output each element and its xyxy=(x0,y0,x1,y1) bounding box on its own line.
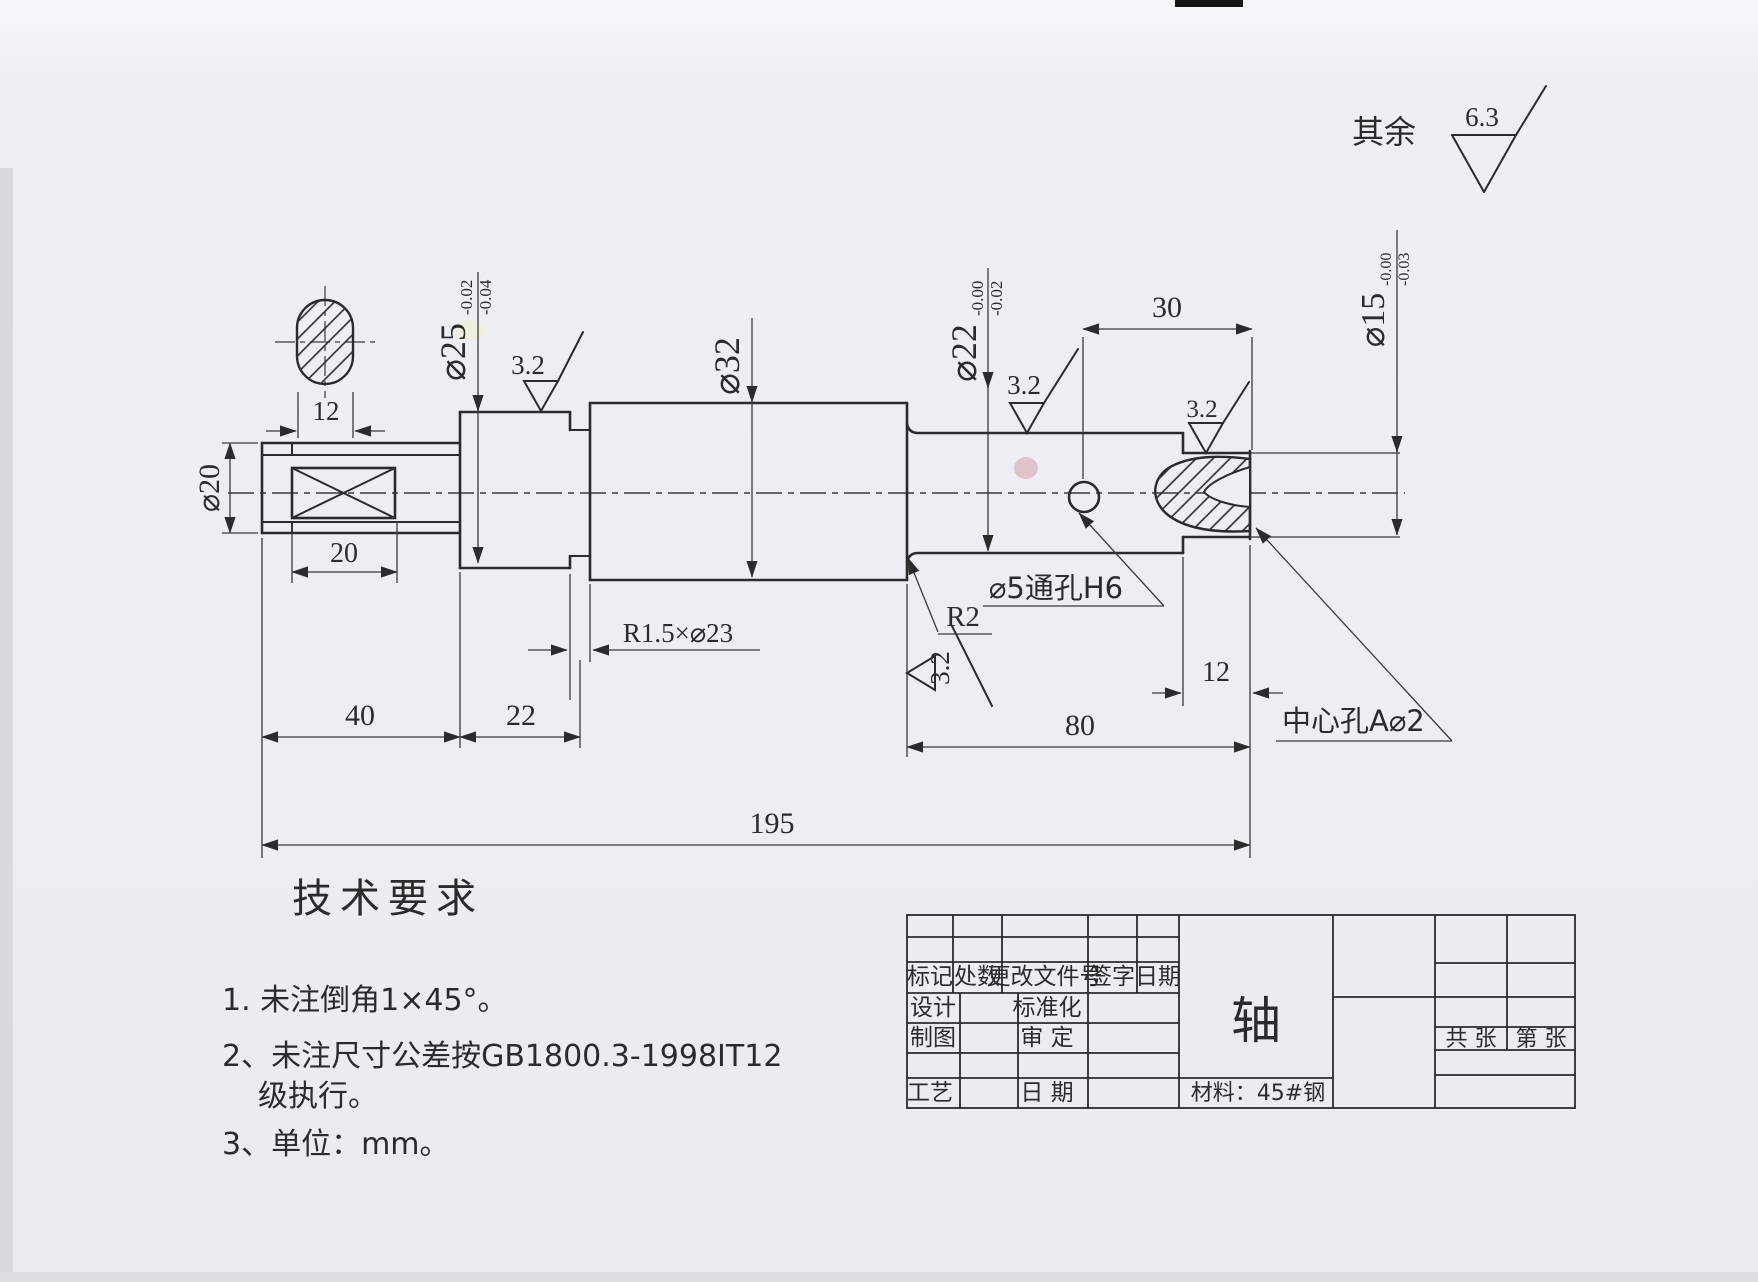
tb-design: 设计 xyxy=(910,995,956,1021)
svg-text:40: 40 xyxy=(345,699,375,732)
svg-text:⌀5通孔H6: ⌀5通孔H6 xyxy=(989,571,1123,605)
broken-out-keyway-section xyxy=(1155,457,1250,532)
rest-roughness-value: 6.3 xyxy=(1465,102,1499,132)
tb-approve: 审 定 xyxy=(1020,1025,1073,1051)
shaft-outline xyxy=(262,403,1250,580)
dim-d25: ⌀25 -0.02 -0.04 xyxy=(433,272,495,563)
dim-d32: ⌀32 xyxy=(707,318,752,577)
tech-req-item-2: 2、未注尺寸公差按GB1800.3-1998IT12 xyxy=(222,1039,782,1074)
tech-req-item-3: 3、单位：mm。 xyxy=(222,1127,450,1162)
svg-text:195: 195 xyxy=(750,807,795,840)
title-block: 标记 处数 更改文件号 签字 日期 设计 标准化 制图 审 定 工艺 日 期 轴… xyxy=(907,915,1575,1108)
tech-req-item-1: 1. 未注倒角1×45°。 xyxy=(222,983,508,1018)
dim-d20: ⌀20 xyxy=(193,443,258,533)
dim-len195: 195 xyxy=(262,807,1250,845)
tb-sheet-no: 第 张 xyxy=(1516,1027,1567,1052)
dim-len20: 20 xyxy=(292,521,397,583)
svg-text:3.2: 3.2 xyxy=(1186,396,1217,423)
paper-edge-shadow xyxy=(0,168,13,1282)
rest-roughness-note: 其余 6.3 xyxy=(1352,86,1546,192)
paper-bottom-shadow xyxy=(0,1272,1758,1282)
tech-req-title: 技术要求 xyxy=(292,876,484,922)
svg-text:R2: R2 xyxy=(946,601,980,633)
r2-callout: R2 xyxy=(908,558,992,634)
roughness-symbol-4: 3.2 xyxy=(1186,382,1249,453)
tb-sign: 签字 xyxy=(1089,964,1135,990)
svg-text:-0.00: -0.00 xyxy=(968,281,987,316)
svg-text:⌀22: ⌀22 xyxy=(944,324,984,382)
svg-text:12: 12 xyxy=(1202,657,1230,688)
through-hole-circle xyxy=(1069,482,1099,512)
roughness-symbol-3: 3.2 xyxy=(907,626,992,706)
pink-smudge xyxy=(1014,457,1038,479)
tb-craft: 工艺 xyxy=(907,1080,953,1106)
tb-mark: 标记 xyxy=(907,964,953,990)
svg-text:-0.04: -0.04 xyxy=(476,279,495,315)
keyway-removed-section: 12 xyxy=(266,286,385,438)
tb-sheets-total: 共 张 xyxy=(1446,1027,1497,1052)
svg-text:其余: 其余 xyxy=(1352,113,1416,151)
scanned-drawing-page: 12 ⌀20 ⌀25 -0.02 -0.04 ⌀32 ⌀22 -0.00 -0.… xyxy=(0,0,1758,1282)
svg-text:80: 80 xyxy=(1065,709,1095,742)
tb-date: 日期 xyxy=(1135,964,1181,990)
tb-std: 标准化 xyxy=(1013,995,1082,1021)
tb-date2: 日 期 xyxy=(1020,1080,1073,1106)
svg-text:3.2: 3.2 xyxy=(511,350,545,380)
svg-text:⌀25: ⌀25 xyxy=(433,323,473,381)
tech-req-item-2b: 级执行。 xyxy=(258,1079,378,1114)
dim-len12: 12 xyxy=(1152,545,1283,858)
dim-d22: ⌀22 -0.00 -0.02 xyxy=(944,268,1006,551)
roughness-symbol-1: 3.2 xyxy=(511,332,583,411)
groove-callout: R1.5×⌀23 xyxy=(528,574,760,700)
svg-text:中心孔A⌀2: 中心孔A⌀2 xyxy=(1282,704,1425,738)
svg-text:-0.02: -0.02 xyxy=(457,280,476,315)
tb-draft: 制图 xyxy=(910,1025,956,1051)
svg-text:-0.03: -0.03 xyxy=(1396,253,1413,286)
svg-text:20: 20 xyxy=(330,538,358,569)
dim-len40: 40 xyxy=(262,538,460,858)
dim-len22: 22 xyxy=(460,660,580,748)
svg-text:3.2: 3.2 xyxy=(925,651,955,685)
dim-len30: 30 xyxy=(1083,291,1252,479)
svg-text:22: 22 xyxy=(506,699,536,732)
svg-text:3.2: 3.2 xyxy=(1007,370,1041,400)
dim-keyway-width: 12 xyxy=(313,396,340,426)
scan-artifact-bar xyxy=(1175,0,1243,7)
roughness-symbol-2: 3.2 xyxy=(1007,349,1078,433)
svg-text:R1.5×⌀23: R1.5×⌀23 xyxy=(623,618,733,648)
center-hole-callout: 中心孔A⌀2 xyxy=(1256,528,1452,741)
svg-text:-0.00: -0.00 xyxy=(1378,253,1395,286)
tb-part-name: 轴 xyxy=(1231,992,1281,1050)
svg-text:⌀15: ⌀15 xyxy=(1355,293,1392,347)
dim-d15: ⌀15 -0.00 -0.03 xyxy=(1355,230,1413,535)
through-hole-callout: ⌀5通孔H6 xyxy=(983,513,1164,606)
tb-doc: 更改文件号 xyxy=(988,964,1103,990)
tb-material: 材料：45#钢 xyxy=(1191,1081,1325,1106)
svg-text:⌀32: ⌀32 xyxy=(707,337,747,395)
svg-text:-0.02: -0.02 xyxy=(987,281,1006,316)
svg-text:⌀20: ⌀20 xyxy=(193,464,226,512)
svg-text:30: 30 xyxy=(1152,291,1182,324)
shaft-engineering-drawing: 12 ⌀20 ⌀25 -0.02 -0.04 ⌀32 ⌀22 -0.00 -0.… xyxy=(0,0,1758,1282)
technical-requirements: 技术要求 1. 未注倒角1×45°。 2、未注尺寸公差按GB1800.3-199… xyxy=(222,876,782,1162)
